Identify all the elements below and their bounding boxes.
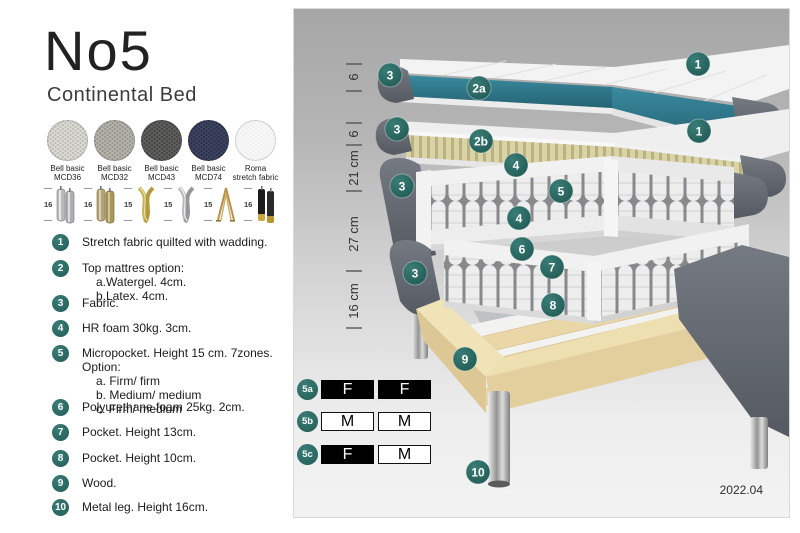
leg-option: 15 <box>204 184 241 224</box>
svg-text:2b: 2b <box>474 135 488 149</box>
fabric-swatch: Bell basicMCD36 <box>46 120 89 182</box>
bed-exploded-diagram: 6 6 21 cm 27 cm 16 cm 1 2a 3 3 1 2b 4 5 … <box>294 9 789 517</box>
legend-text: Wood. <box>82 475 116 490</box>
callout-3: 3 <box>378 63 402 87</box>
leg-option: 15 <box>164 184 201 224</box>
callout-4: 4 <box>504 153 528 177</box>
firmness-cell: M <box>378 445 431 464</box>
fabric-code: MCD32 <box>97 173 131 182</box>
measurement-labels: 6 6 21 cm 27 cm 16 cm <box>346 73 361 318</box>
fabric-name: Bell basic <box>144 164 178 173</box>
leg-option: 16 <box>84 184 121 224</box>
callout-8: 8 <box>541 293 565 317</box>
legend-item: 8Pocket. Height 10cm. <box>52 450 302 467</box>
legend-text: Top mattres option: <box>82 261 184 275</box>
svg-text:3: 3 <box>394 123 401 137</box>
legend-number: 5 <box>52 345 69 362</box>
right-metal-leg <box>750 417 768 469</box>
legend-text: Pocket. Height 13cm. <box>82 424 196 439</box>
svg-text:3: 3 <box>399 180 406 194</box>
callout-2b: 2b <box>469 129 493 153</box>
leg-height: 15 <box>164 200 172 209</box>
callout-5: 5 <box>549 179 573 203</box>
svg-text:8: 8 <box>550 299 557 313</box>
svg-text:4: 4 <box>516 212 523 226</box>
legend-number: 1 <box>52 234 69 251</box>
svg-text:6: 6 <box>519 243 526 257</box>
callout-3: 3 <box>403 261 427 285</box>
fabric-code: stretch fabric <box>233 173 279 182</box>
fabric-swatch-circle <box>188 120 229 161</box>
leg-cylinder-black-gold-icon <box>253 184 279 224</box>
legend-item: 7Pocket. Height 13cm. <box>52 424 302 441</box>
legend-text: Metal leg. Height 16cm. <box>82 499 208 514</box>
legend-text: Stretch fabric quilted with wadding. <box>82 234 267 249</box>
legend-number: 4 <box>52 320 69 337</box>
legend-text: Micropocket. Height 15 cm. 7zones. Optio… <box>82 346 273 374</box>
firmness-row-5c: 5c F M <box>297 444 435 465</box>
callout-10: 10 <box>466 460 490 484</box>
fabric-swatch: Bell basicMCD32 <box>93 120 136 182</box>
leg-cylinder-bronze-icon <box>93 184 119 224</box>
callout-1: 1 <box>687 119 711 143</box>
fabric-name: Bell basic <box>191 164 225 173</box>
leg-height: 16 <box>44 200 52 209</box>
legend-number: 9 <box>52 475 69 492</box>
fabric-code: MCD74 <box>191 173 225 182</box>
callout-1: 1 <box>686 52 710 76</box>
svg-text:4: 4 <box>513 159 520 173</box>
fabric-code: MCD43 <box>144 173 178 182</box>
firmness-cell: F <box>321 445 374 464</box>
fabric-name: Bell basic <box>50 164 84 173</box>
firmness-cell: F <box>378 380 431 399</box>
leg-twist-gold-icon <box>133 184 159 224</box>
revision-date: 2022.04 <box>720 483 763 497</box>
leg-cylinder-silver-icon <box>53 184 79 224</box>
legend-item: 3Fabric. <box>52 295 302 312</box>
callout-4: 4 <box>507 206 531 230</box>
legend-item: 6Polyurethane foam 25kg. 2cm. <box>52 399 302 416</box>
page-title: No5 <box>44 18 153 83</box>
front-metal-leg <box>488 391 510 485</box>
fabric-swatch: Bell basicMCD74 <box>187 120 230 182</box>
callout-7: 7 <box>540 255 564 279</box>
svg-text:2a: 2a <box>472 82 486 96</box>
legend-number: 7 <box>52 424 69 441</box>
leg-twist-silver-icon <box>173 184 199 224</box>
svg-text:10: 10 <box>471 466 485 480</box>
legend-number: 10 <box>52 499 69 516</box>
leg-height: 16 <box>84 200 92 209</box>
firmness-cell: F <box>321 380 374 399</box>
measurement-label: 16 cm <box>346 283 361 318</box>
legend-number: 6 <box>52 399 69 416</box>
page-subtitle: Continental Bed <box>47 84 197 107</box>
legend-number: 8 <box>52 450 69 467</box>
fabric-swatch-row: Bell basicMCD36 Bell basicMCD32 Bell bas… <box>46 120 277 182</box>
legend-item: 1Stretch fabric quilted with wadding. <box>52 234 302 251</box>
svg-text:7: 7 <box>549 261 556 275</box>
bed-diagram-panel: 6 6 21 cm 27 cm 16 cm 1 2a 3 3 1 2b 4 5 … <box>293 8 790 518</box>
legend-item: 10Metal leg. Height 16cm. <box>52 499 302 516</box>
firmness-label: 5b <box>297 411 318 432</box>
firmness-label: 5c <box>297 444 318 465</box>
fabric-swatch-circle <box>141 120 182 161</box>
leg-height: 15 <box>124 200 132 209</box>
fabric-code: MCD36 <box>50 173 84 182</box>
legend-item: 4HR foam 30kg. 3cm. <box>52 320 302 337</box>
fabric-name: Bell basic <box>97 164 131 173</box>
svg-text:5: 5 <box>558 185 565 199</box>
firmness-label: 5a <box>297 379 318 400</box>
svg-text:3: 3 <box>387 69 394 83</box>
fabric-swatch-circle <box>47 120 88 161</box>
legend-subitem: a.Watergel. 4cm. <box>96 275 186 289</box>
svg-text:1: 1 <box>695 58 702 72</box>
firmness-cell: M <box>321 412 374 431</box>
leg-options-row: 16 16 15 15 15 <box>44 184 281 224</box>
callout-2a: 2a <box>467 76 491 100</box>
measurement-label: 6 <box>346 130 361 137</box>
callout-3: 3 <box>385 117 409 141</box>
measurement-label: 6 <box>346 73 361 80</box>
fabric-swatch-circle <box>235 120 276 161</box>
leg-height: 15 <box>204 200 212 209</box>
callout-6: 6 <box>510 237 534 261</box>
fabric-swatch: Bell basicMCD43 <box>140 120 183 182</box>
legend-text: Pocket. Height 10cm. <box>82 450 196 465</box>
leg-option: 16 <box>44 184 81 224</box>
measurement-label: 27 cm <box>346 216 361 251</box>
leg-option: 16 <box>244 184 281 224</box>
fabric-swatch: Romastretch fabric <box>234 120 277 182</box>
legend-number: 3 <box>52 295 69 312</box>
firmness-row-5b: 5b M M <box>297 411 435 432</box>
fabric-name: Roma <box>233 164 279 173</box>
callout-3: 3 <box>390 174 414 198</box>
leg-height: 16 <box>244 200 252 209</box>
legend-number: 2 <box>52 260 69 277</box>
legend-item: 9Wood. <box>52 475 302 492</box>
firmness-cell: M <box>378 412 431 431</box>
base-box-layer <box>390 224 789 488</box>
svg-text:3: 3 <box>412 267 419 281</box>
fabric-swatch-circle <box>94 120 135 161</box>
leg-hairpin-gold-icon <box>213 184 241 224</box>
measurement-label: 21 cm <box>346 150 361 185</box>
leg-option: 15 <box>124 184 161 224</box>
legend-text: Polyurethane foam 25kg. 2cm. <box>82 399 245 414</box>
legend-text: Fabric. <box>82 295 119 310</box>
legend-text: HR foam 30kg. 3cm. <box>82 320 191 335</box>
svg-text:1: 1 <box>696 125 703 139</box>
callout-9: 9 <box>453 347 477 371</box>
firmness-row-5a: 5a F F <box>297 379 435 400</box>
legend-subitem: a. Firm/ firm <box>96 374 302 388</box>
svg-text:9: 9 <box>462 353 469 367</box>
